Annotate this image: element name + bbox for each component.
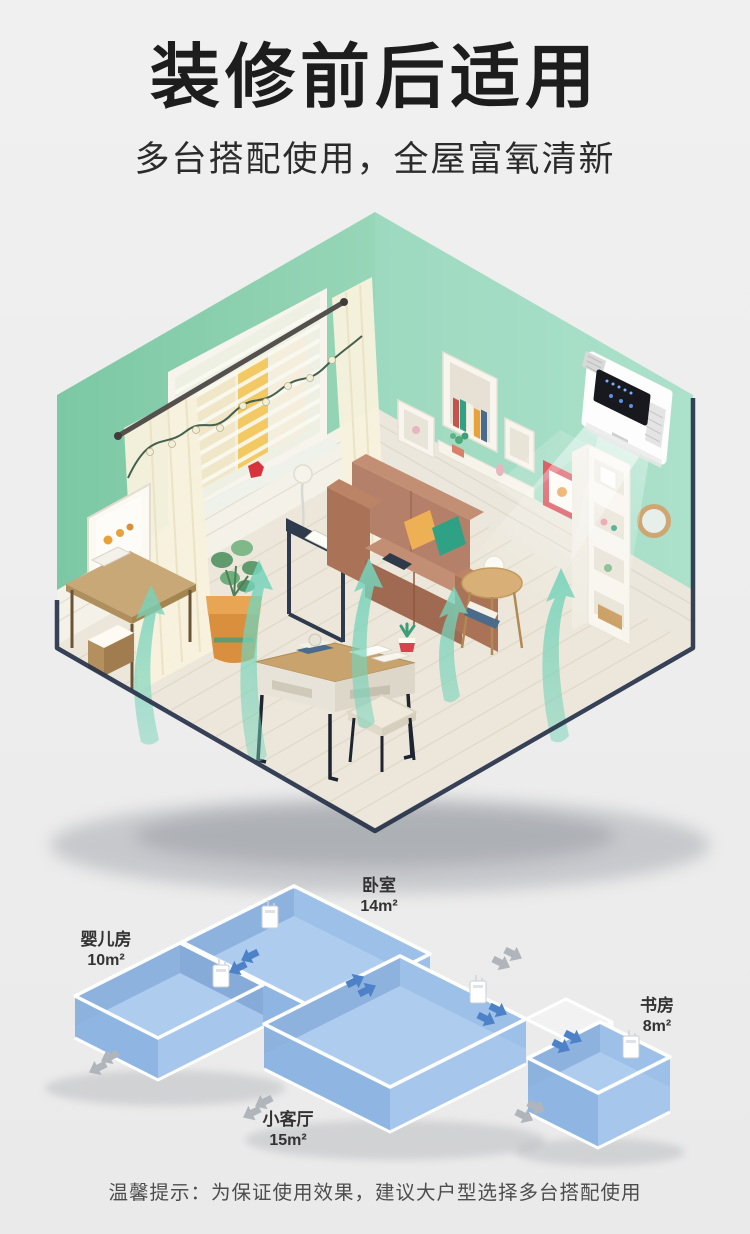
- plan-room-study: [528, 1022, 670, 1148]
- room-label-living: 小客厅 15m²: [263, 1109, 314, 1151]
- room-area: 8m²: [640, 1017, 674, 1037]
- room-name: 卧室: [360, 875, 397, 897]
- promo-page: 装修前后适用 多台搭配使用，全屋富氧清新: [0, 0, 750, 1234]
- plan-device-living: [470, 975, 486, 1003]
- lamp-shade: [294, 465, 312, 483]
- room-label-baby: 婴儿房 10m²: [81, 929, 132, 971]
- room-label-study: 书房 8m²: [640, 995, 674, 1037]
- room-area: 10m²: [81, 951, 132, 971]
- room-name: 书房: [640, 995, 674, 1017]
- room-name: 小客厅: [263, 1109, 314, 1131]
- room-label-bedroom: 卧室 14m²: [360, 875, 397, 917]
- succulent-pot: [398, 624, 416, 652]
- room-area: 14m²: [360, 897, 397, 917]
- room-scene: [50, 212, 710, 893]
- round-mirror: [637, 504, 671, 538]
- floor-plan: [45, 886, 685, 1166]
- warm-tip: 温馨提示：为保证使用效果，建议大户型选择多台搭配使用: [0, 1176, 750, 1205]
- room-name: 婴儿房: [81, 929, 132, 951]
- room-area: 15m²: [263, 1131, 314, 1151]
- illustrations: [0, 0, 750, 1234]
